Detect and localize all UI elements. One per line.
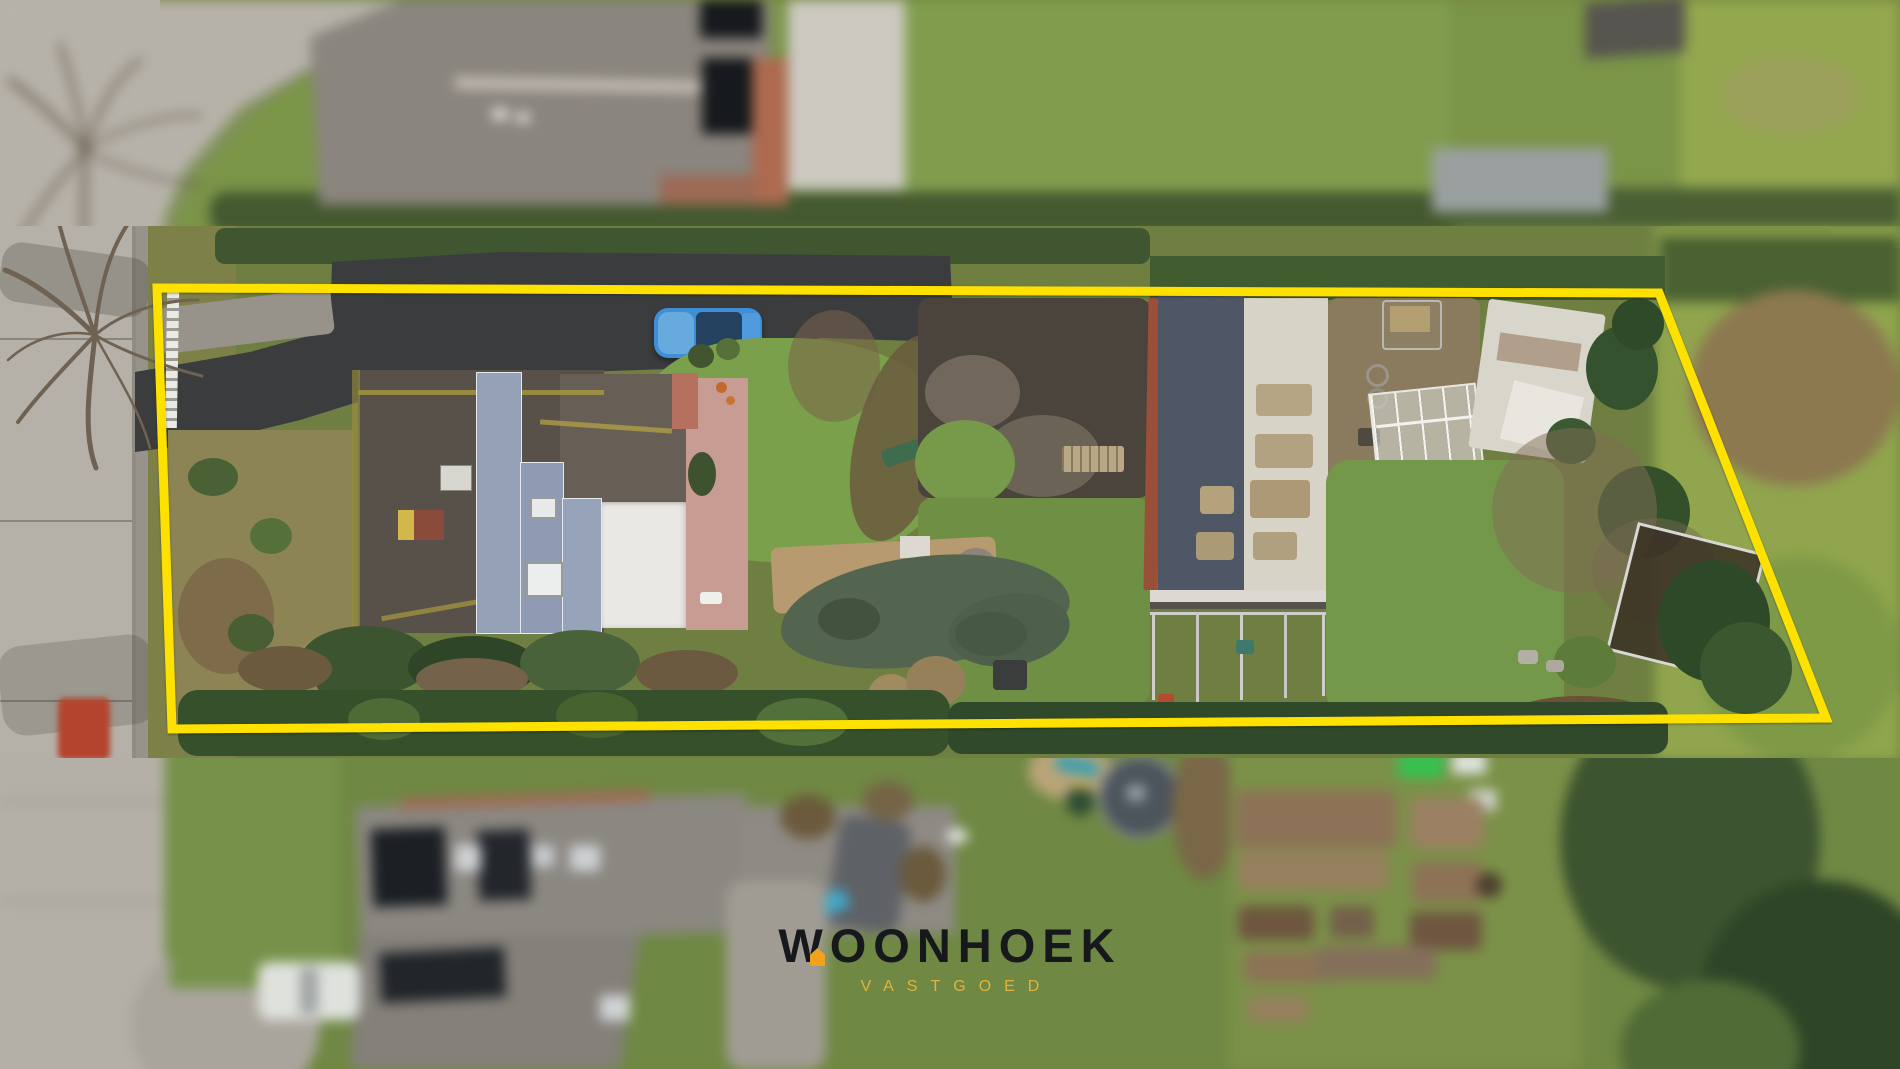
shrub-2 xyxy=(862,782,914,820)
barn-tan-patch-4 xyxy=(1253,532,1297,560)
white-slab-1 xyxy=(900,536,930,558)
barn-fascia xyxy=(1150,602,1328,609)
solar-strip-b xyxy=(520,462,564,634)
play-structure xyxy=(1066,786,1094,816)
top-patio xyxy=(788,0,908,190)
street-joint-2 xyxy=(0,520,132,522)
brand-text: WOONHOEK xyxy=(778,919,1121,972)
top-skylight-2 xyxy=(516,112,530,123)
conifer-2 xyxy=(1612,298,1664,350)
barn-tan-patch-5 xyxy=(1200,486,1234,514)
veg-bed-5 xyxy=(1238,906,1314,940)
white-car-glass xyxy=(300,968,318,1014)
flower-pot-1 xyxy=(716,382,727,393)
cart-contents xyxy=(1390,306,1430,332)
road-joint-1 xyxy=(0,800,165,803)
white-dot xyxy=(946,828,968,844)
pale-twigs-1 xyxy=(925,355,1020,430)
skylight-1 xyxy=(530,497,557,519)
shrub xyxy=(250,518,292,554)
hedge-bottom-right xyxy=(948,702,1668,754)
stepping-stone-2 xyxy=(1546,660,1564,672)
moss-line-2 xyxy=(352,370,360,630)
bh-skylight-1 xyxy=(455,845,481,871)
pergola-post-2 xyxy=(1196,612,1199,702)
top-fence-shed xyxy=(1432,148,1608,212)
chimney-brick xyxy=(414,510,444,540)
brown-shrub-row-1 xyxy=(238,646,332,692)
brand-tagline: VASTGOED xyxy=(760,978,1140,996)
pergola-post-1 xyxy=(1152,612,1155,700)
veg-bed-10 xyxy=(1248,996,1308,1022)
top-lawn xyxy=(905,0,1450,190)
shrub-3 xyxy=(900,846,946,902)
conifer-6 xyxy=(1700,622,1792,714)
veg-bed-2 xyxy=(1410,798,1484,848)
bh-solar-1 xyxy=(371,827,448,908)
pond-shadow-2 xyxy=(955,612,1027,656)
pergola-bar xyxy=(1150,612,1326,615)
chimney-white xyxy=(440,465,472,491)
barn-tan-patch-1 xyxy=(1256,384,1312,416)
front-bush-1 xyxy=(688,344,714,368)
compost-circle xyxy=(1476,872,1502,898)
play-yellow-dot xyxy=(1076,781,1085,790)
road-joint-2 xyxy=(0,900,165,903)
outside-brown-patch xyxy=(1690,290,1900,486)
top-brick-wall xyxy=(752,58,788,205)
house-hedge-3 xyxy=(520,630,640,696)
solar-strip-a xyxy=(476,372,522,634)
flower-pot-2 xyxy=(726,396,735,405)
flat-roof-extension xyxy=(602,502,688,628)
bottom-lawn-left xyxy=(170,748,340,988)
barn-gutter xyxy=(1150,590,1328,602)
tree-branches xyxy=(5,205,202,468)
front-bush-2 xyxy=(716,338,740,360)
veg-bed-6 xyxy=(1330,906,1374,938)
hedge-bottom-blob-1 xyxy=(348,698,420,740)
dirt-patch xyxy=(1172,740,1236,880)
top-skylight-1 xyxy=(492,108,508,120)
bh-solar-3 xyxy=(379,947,506,1003)
brand-name: WOONHOEK xyxy=(760,922,1140,969)
bh-skylight-3 xyxy=(570,845,600,871)
front-path xyxy=(672,373,698,429)
top-brick-low xyxy=(660,175,755,205)
top-meadow-patch xyxy=(1720,55,1860,135)
car-hood xyxy=(658,312,694,354)
skylight-2 xyxy=(526,562,563,597)
hedge-top-right xyxy=(1150,256,1665,300)
pergola-post-5 xyxy=(1322,612,1325,696)
chimney-yellow xyxy=(398,510,414,540)
pond-pump xyxy=(993,660,1027,690)
bh-skylight-2 xyxy=(532,845,554,867)
hose-ring-1 xyxy=(1366,364,1389,387)
terrace-bush xyxy=(688,452,716,496)
pallet xyxy=(1062,446,1124,472)
solar-strip-c xyxy=(562,498,602,634)
aerial-photo: WOONHOEK VASTGOED xyxy=(0,0,1900,1069)
red-container xyxy=(58,698,110,760)
teal-item xyxy=(1236,640,1254,654)
hedge-bottom-blob-3 xyxy=(756,698,848,746)
pergola-post-4 xyxy=(1284,612,1287,698)
veg-bed-1 xyxy=(1236,790,1396,848)
veg-bed-4 xyxy=(1412,862,1482,902)
watermark: WOONHOEK VASTGOED xyxy=(760,922,1140,996)
hedge-bottom-blob-2 xyxy=(556,692,638,738)
top-corner-roof xyxy=(1585,0,1685,58)
stepping-stone-1 xyxy=(1518,650,1538,664)
veg-bed-7 xyxy=(1410,912,1482,950)
top-solar-array-1 xyxy=(700,0,762,38)
shrub xyxy=(188,458,238,496)
veg-bed-3 xyxy=(1238,852,1388,890)
barn-tan-patch-2 xyxy=(1255,434,1313,468)
barn-tan-patch-3 xyxy=(1250,480,1310,518)
bh-skylight-5 xyxy=(600,995,630,1021)
terrace-table xyxy=(700,592,722,604)
bh-solar-2 xyxy=(477,829,531,901)
lawn-tongue xyxy=(915,420,1015,506)
pergola-post-3 xyxy=(1240,612,1243,700)
pond-shadow-1 xyxy=(818,598,880,640)
shrub xyxy=(228,614,274,652)
trampoline-center xyxy=(1126,784,1146,802)
barn-tan-patch-6 xyxy=(1196,532,1234,560)
veg-bed-9 xyxy=(1316,946,1436,980)
shrub-1 xyxy=(780,795,836,839)
